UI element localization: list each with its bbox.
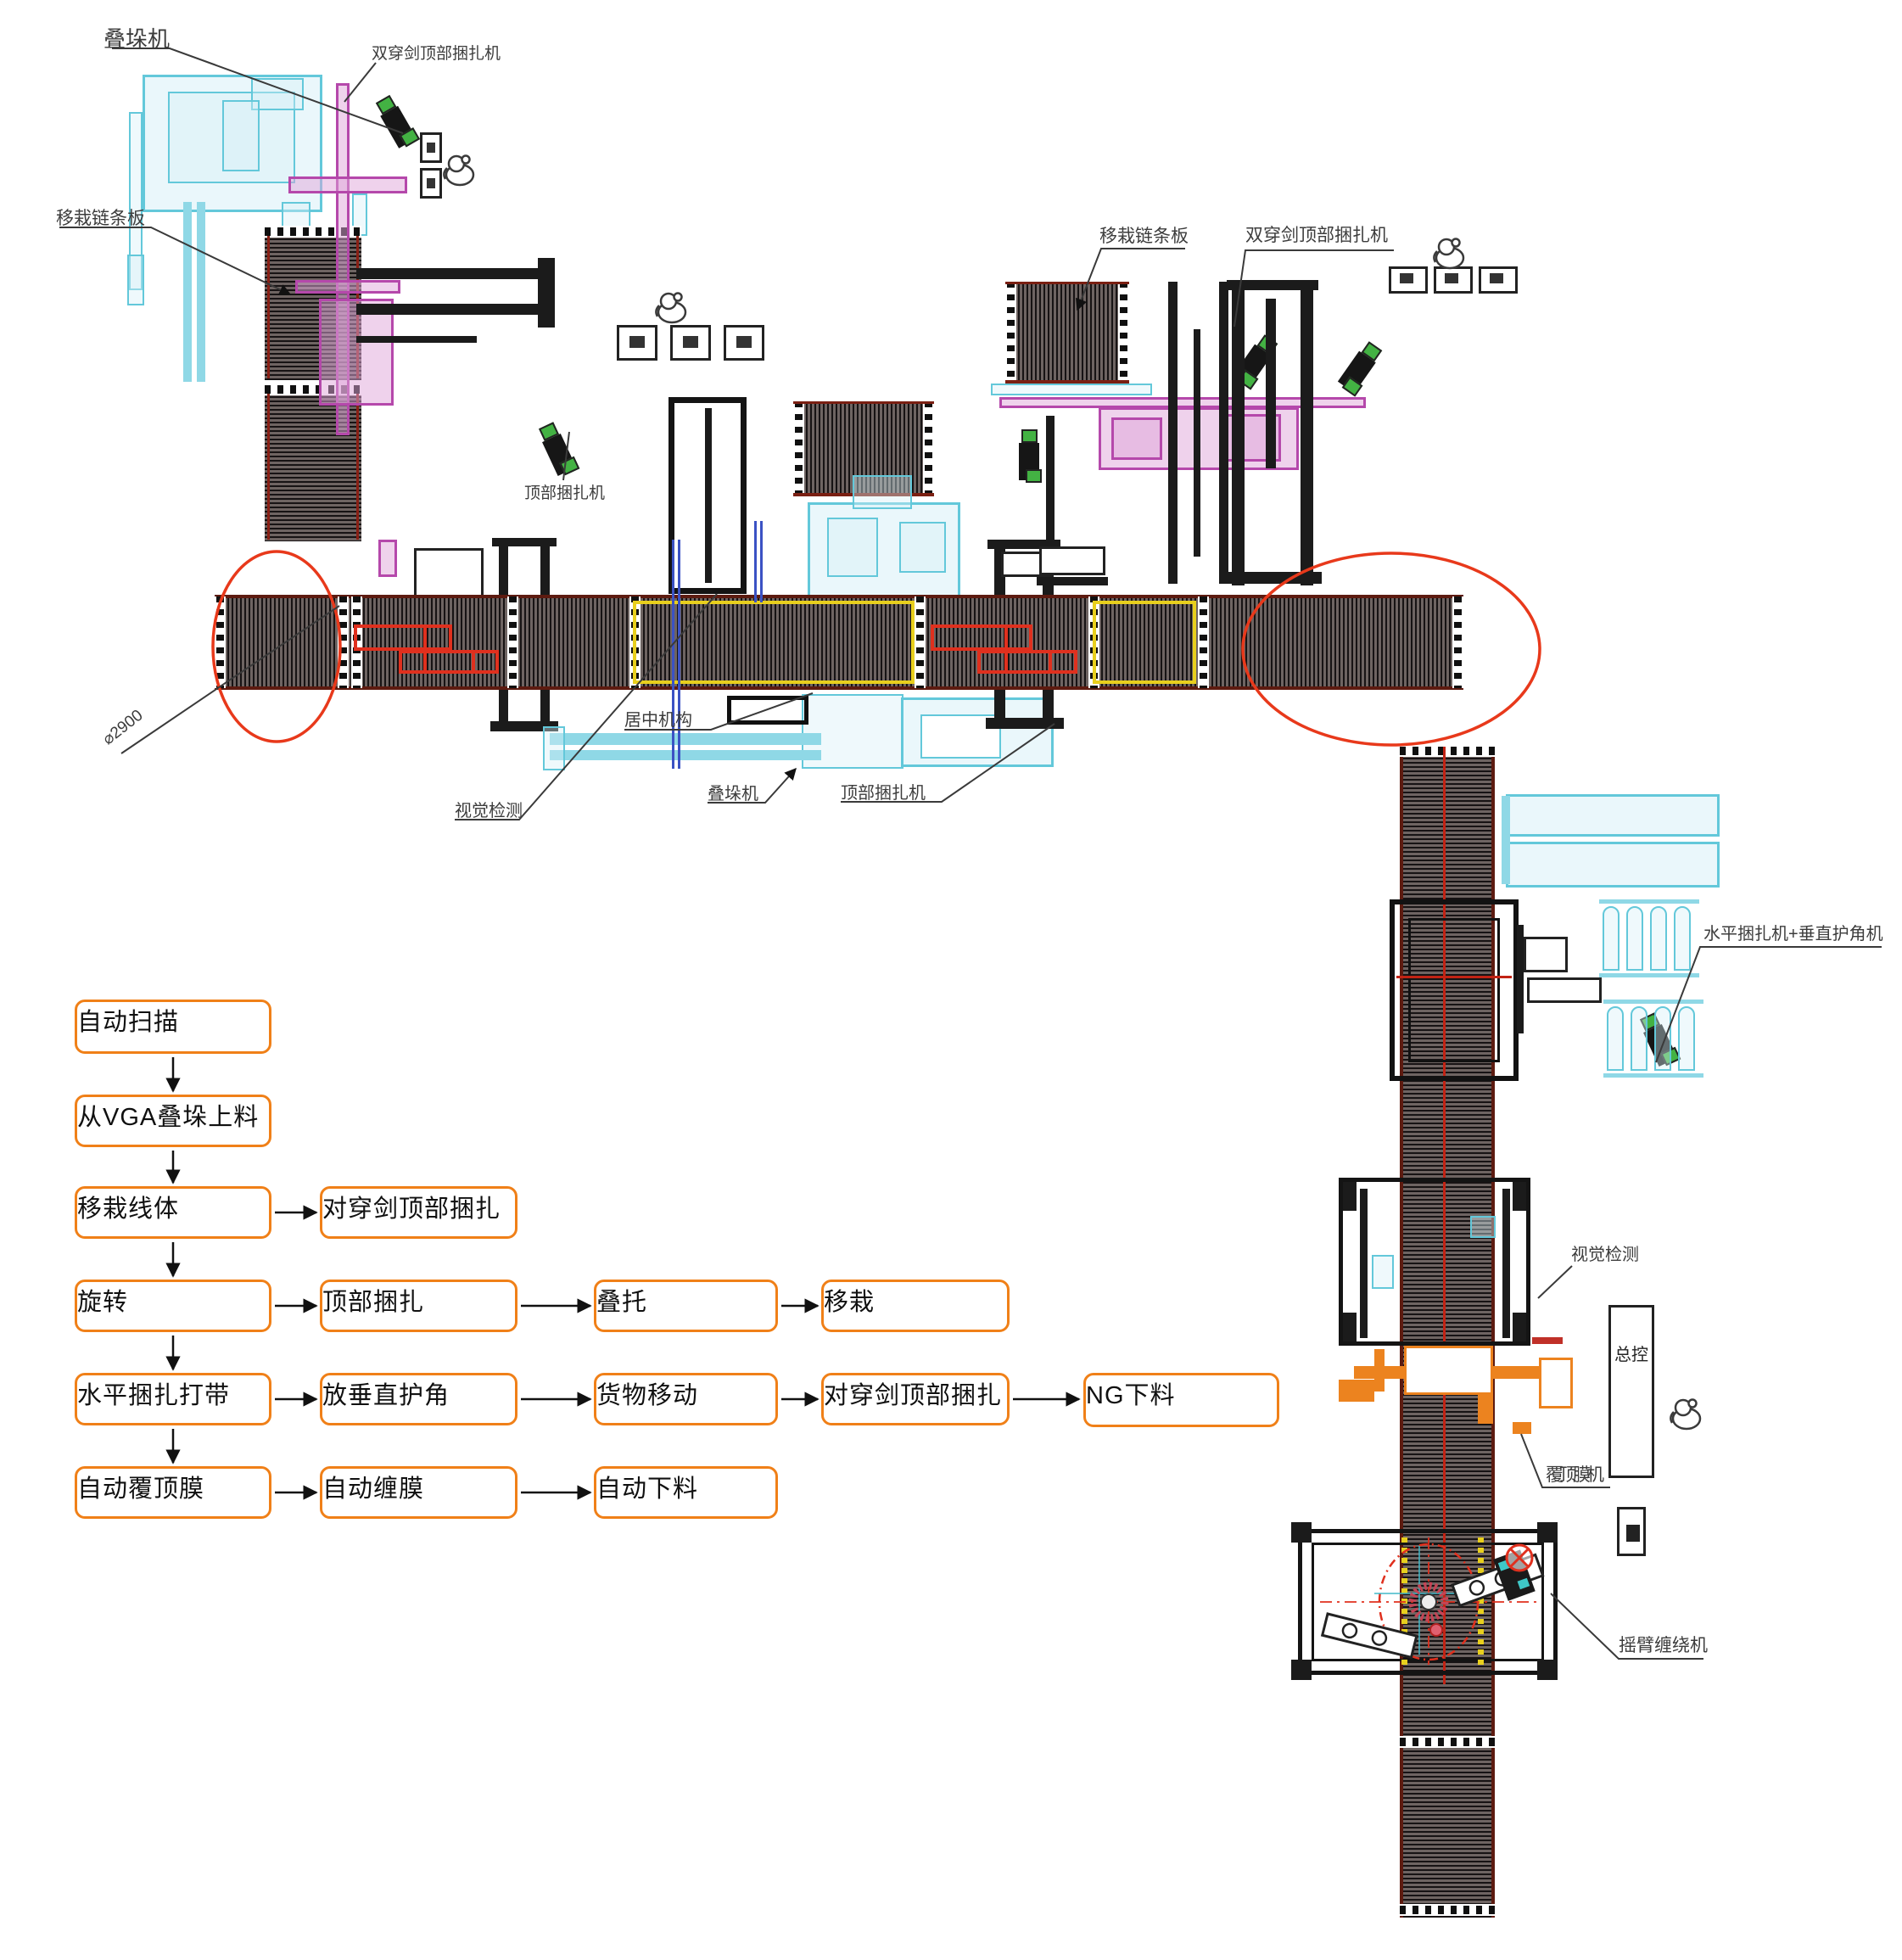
flow-step-stack-pallet: 叠托 [594,1280,778,1332]
pallet-stack-group [1603,1000,1703,1078]
flow-step-cross-sword-top-strap-2: 对穿剑顶部捆扎 [821,1373,1010,1425]
callout-centering-mechanism: 居中机构 [624,706,692,731]
flow-step-top-strap: 顶部捆扎 [320,1280,517,1332]
packing-line-layout-diagram: 总控 自动扫描 从VGA叠垛上料 移栽线体 对穿剑顶部捆扎 旋转 顶部捆扎 叠托… [0,0,1902,1960]
callout-stacker-bottom: 叠垛机 [708,780,758,804]
flow-step-auto-unload: 自动下料 [594,1466,778,1519]
flow-step-transfer: 移栽 [821,1280,1010,1332]
centering-marker-line [672,540,674,769]
callout-double-sword-strapper-right: 双穿剑顶部捆扎机 [1245,221,1388,247]
operator-icon [444,156,473,186]
callout-horizontal-strapper-corner: 水平捆扎机+垂直护角机 [1703,920,1883,944]
vision-inspection-station [1339,1178,1530,1346]
callout-vision-right: 视觉检测 [1571,1240,1639,1265]
flow-step-cross-sword-top-strap-1: 对穿剑顶部捆扎 [320,1186,517,1239]
small-panel [1617,1507,1646,1556]
flow-step-vga-stack-load: 从VGA叠垛上料 [75,1095,271,1147]
callout-top-film-machine: 覆顶膜机 [1546,1461,1600,1487]
operator-icon [656,294,685,323]
sensor-head-icon [533,418,585,482]
master-control-cabinet [1608,1305,1654,1478]
flow-step-rotate: 旋转 [75,1280,271,1332]
flow-step-auto-wrap: 自动缠膜 [320,1466,517,1519]
callout-transfer-chain-left: 移栽链条板 [56,204,145,230]
flow-arrows [173,1057,1079,1492]
operator-icon [1434,239,1463,269]
pallet-stack-group [1599,899,1699,977]
callout-double-sword-strapper-left: 双穿剑顶部捆扎机 [372,41,501,64]
sensor-head-icon [1015,429,1045,485]
flow-step-horizontal-strap: 水平捆扎打带 [75,1373,271,1425]
flow-step-transfer-line: 移栽线体 [75,1186,271,1239]
flow-step-ng-unload: NG下料 [1083,1373,1279,1427]
sensor-head-icon [1331,338,1388,401]
master-control-label: 总控 [1608,1341,1654,1365]
yellow-zone-right [1093,601,1196,684]
callout-transfer-chain-right: 移栽链条板 [1099,222,1189,248]
flow-step-auto-top-film: 自动覆顶膜 [75,1466,271,1519]
callout-vision-mid: 视觉检测 [455,797,523,821]
operator-icon [1670,1400,1700,1430]
callout-stacker-top-left: 叠垛机 [103,22,170,53]
sensor-head-icon [370,91,424,154]
yellow-zone-center [633,601,915,684]
callout-top-strapper-bottom: 顶部捆扎机 [841,779,926,804]
callout-rotary-arm-wrapper: 摇臂缠绕机 [1619,1632,1708,1657]
callout-diameter-dimension: ⌀2900 [99,706,147,749]
callout-top-strapper-upper: 顶部捆扎机 [524,480,605,503]
flow-step-auto-scan: 自动扫描 [75,1000,271,1054]
flow-step-vertical-corner: 放垂直护角 [320,1373,517,1425]
flow-step-cargo-move: 货物移动 [594,1373,778,1425]
